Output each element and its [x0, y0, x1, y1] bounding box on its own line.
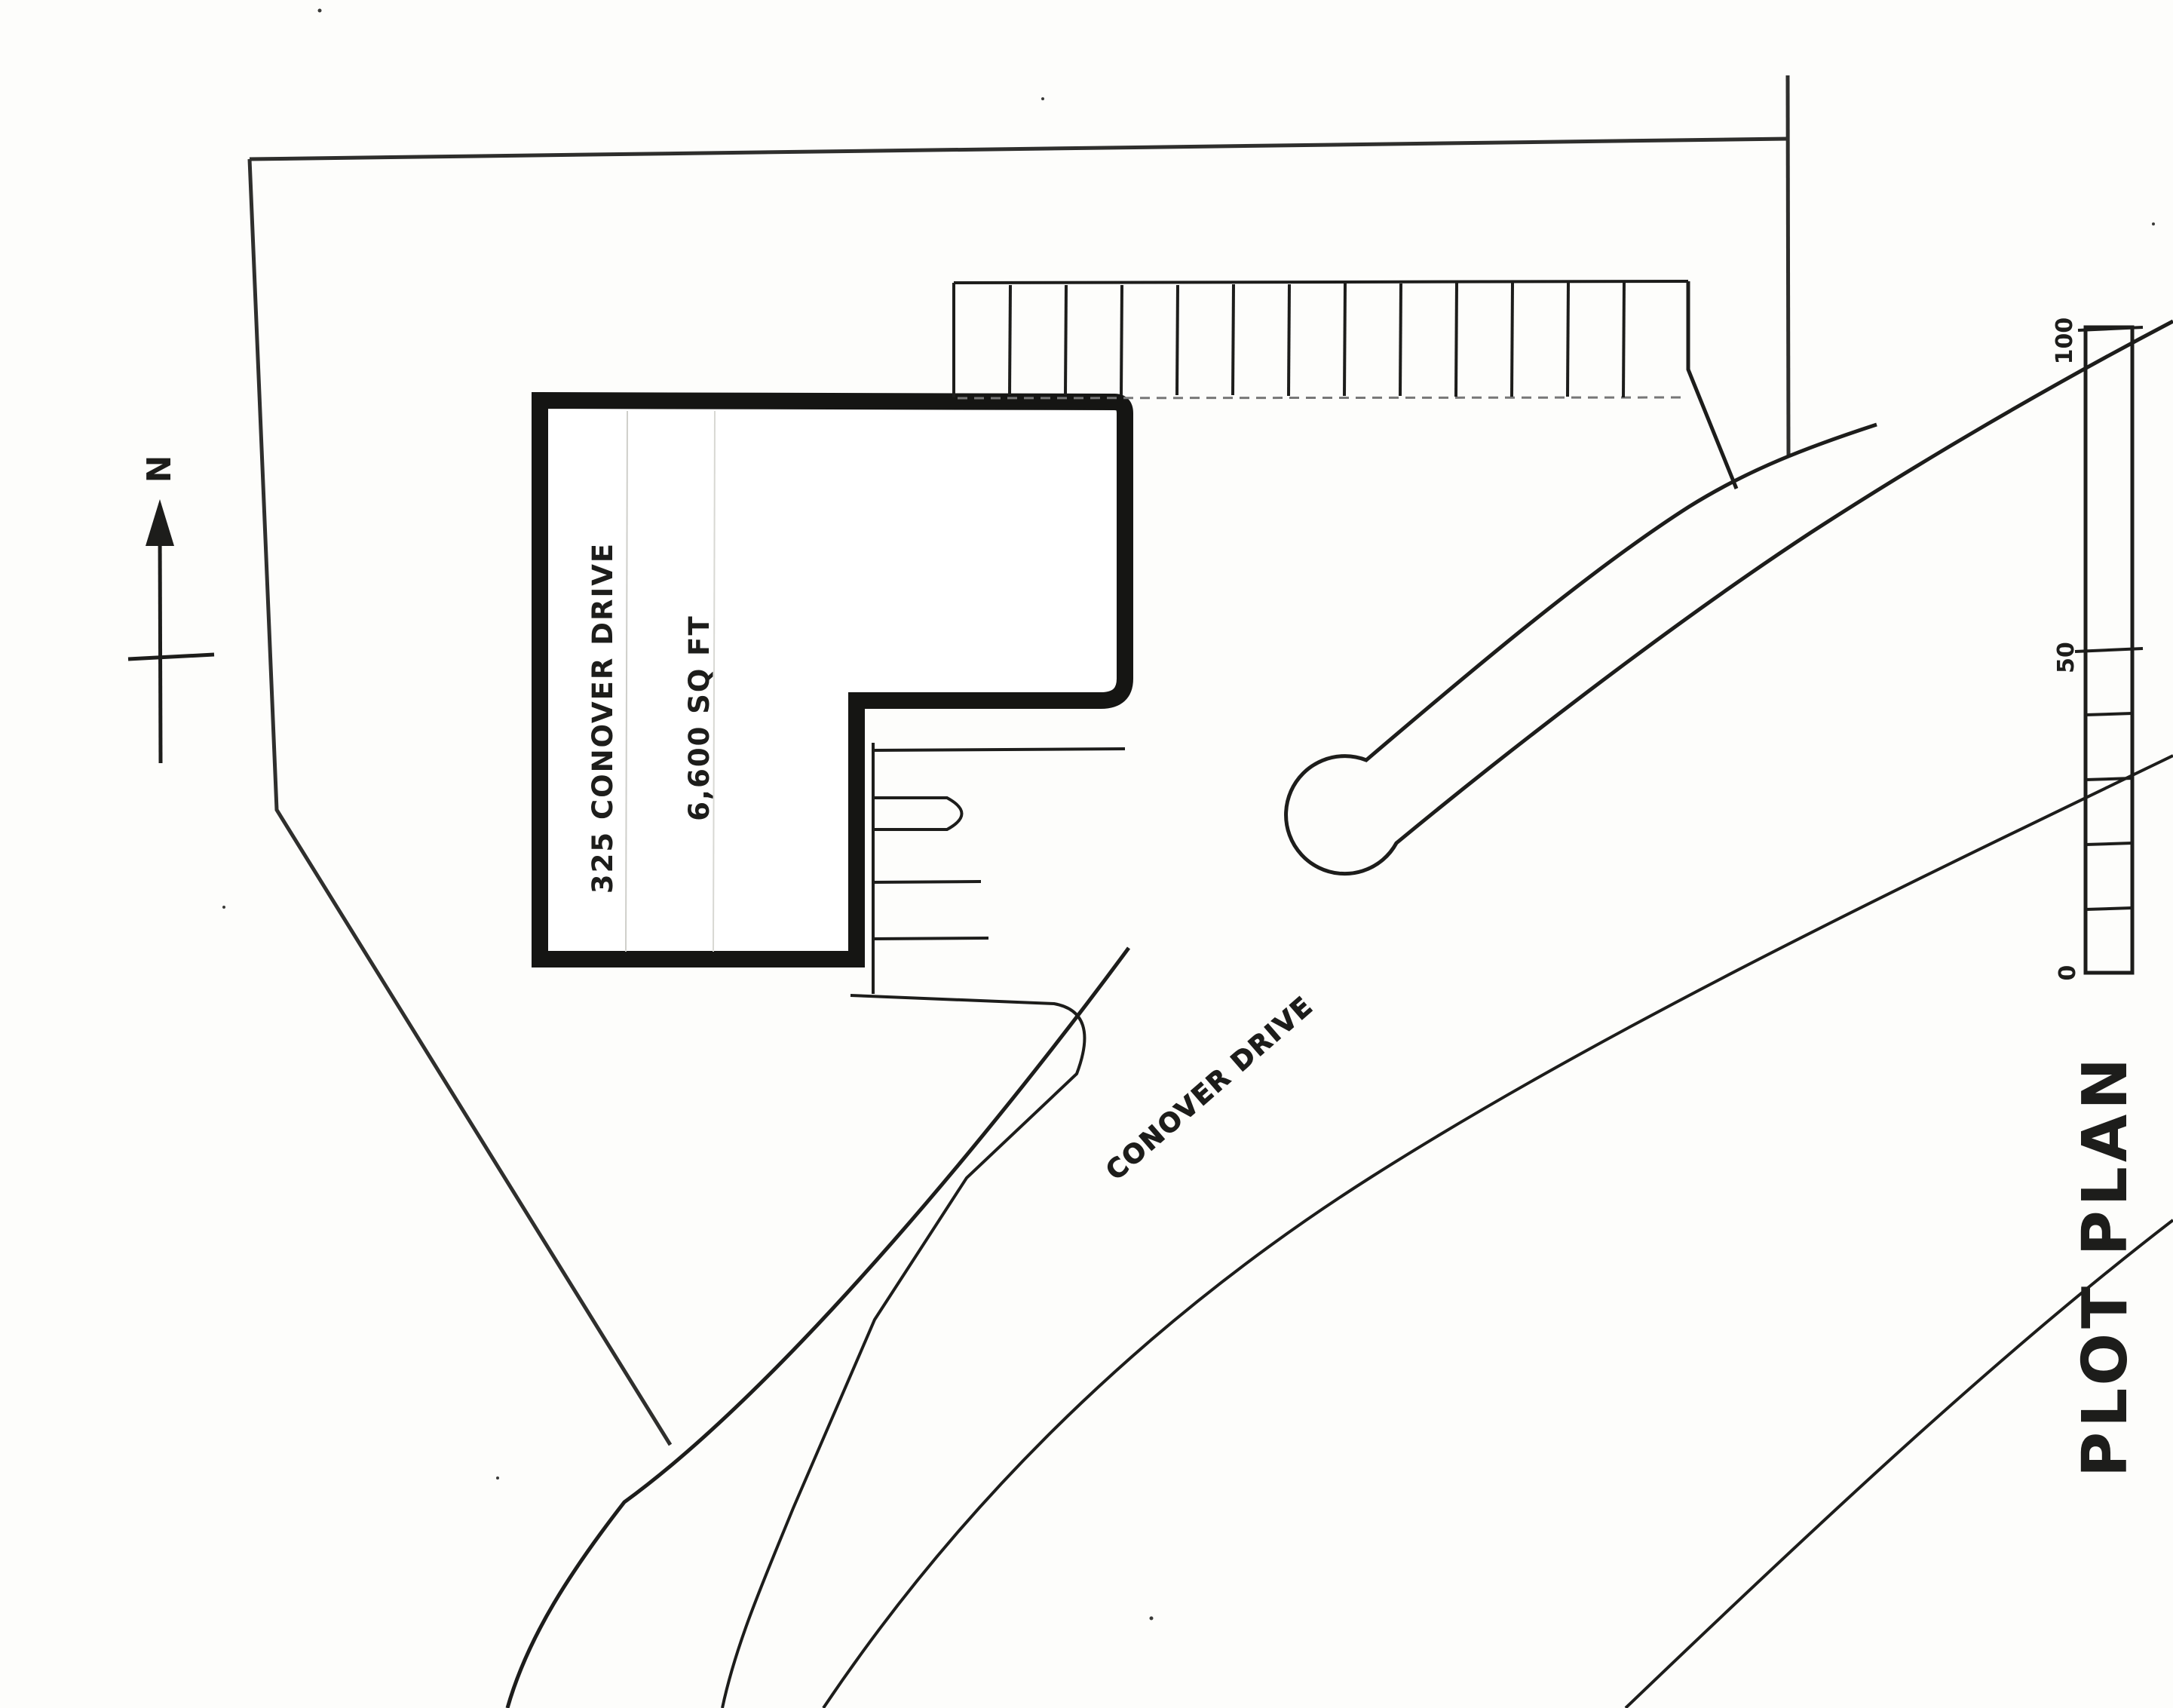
lower-parking-stall-line-1 — [873, 882, 981, 882]
building-area-label: 6,600 SQ FT — [683, 615, 716, 820]
page-title: PLOT PLAN — [2070, 1053, 2141, 1477]
property-boundary-right — [1788, 75, 1788, 455]
paper-background — [0, 0, 2173, 1708]
scale-label-50: 50 — [2053, 642, 2080, 673]
north-arrow-shaft — [160, 526, 161, 763]
building-address-label: 325 CONOVER DRIVE — [587, 542, 619, 894]
lower-parking-top-line — [873, 749, 1125, 750]
north-label: N — [140, 455, 179, 483]
plot-plan-sheet: 325 CONOVER DRIVE 6,600 SQ FT — [0, 0, 2173, 1708]
plot-plan-drawing: 325 CONOVER DRIVE 6,600 SQ FT — [0, 0, 2173, 1708]
scale-label-100: 100 — [2052, 317, 2078, 365]
parking-band-top-line — [954, 281, 1688, 283]
lower-parking-stall-line-2 — [873, 938, 988, 939]
scale-label-0: 0 — [2055, 965, 2081, 981]
